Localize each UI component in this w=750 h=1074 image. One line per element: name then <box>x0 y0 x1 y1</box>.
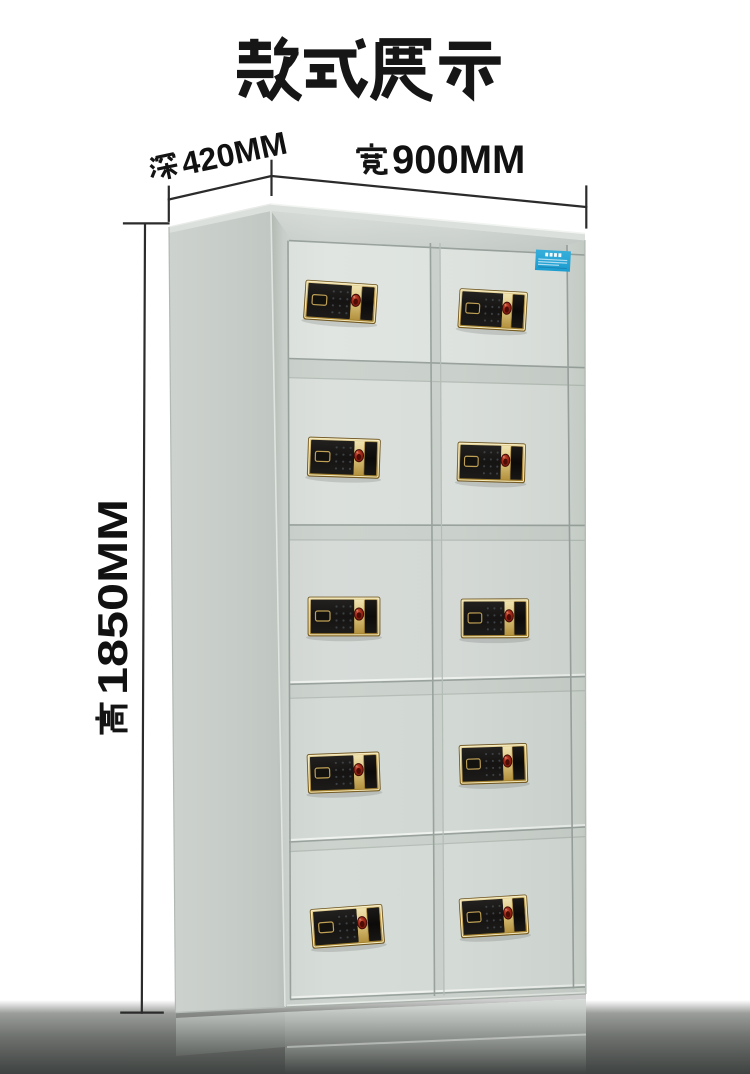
svg-text:1850MM: 1850MM <box>89 499 136 695</box>
svg-text:900MM: 900MM <box>392 138 525 182</box>
